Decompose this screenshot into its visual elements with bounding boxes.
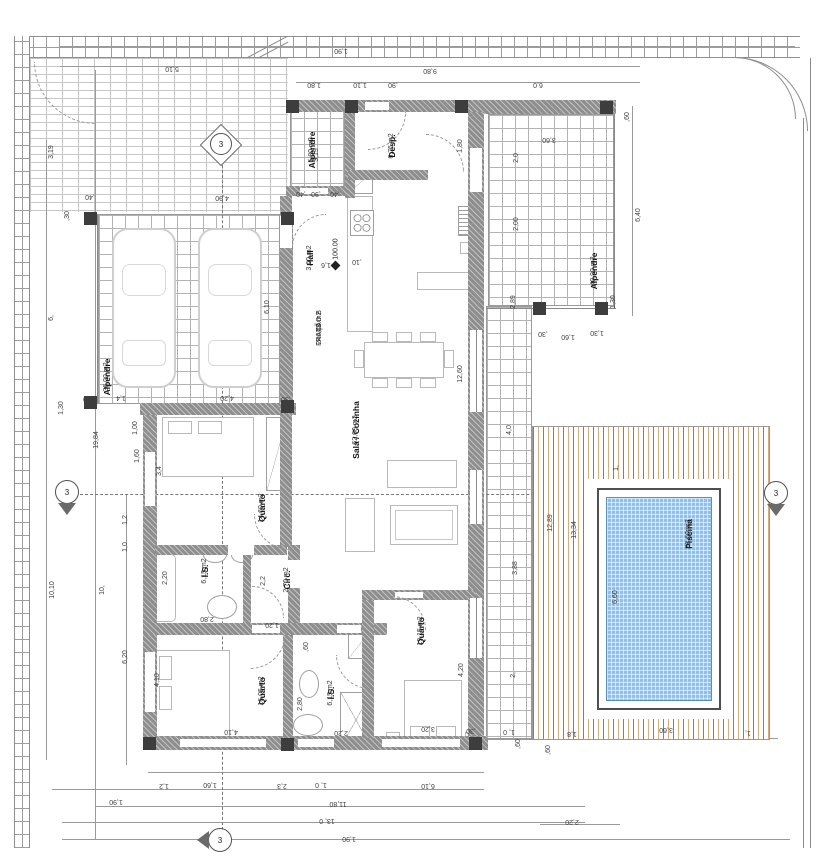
section-marker: 3 xyxy=(764,481,788,505)
dimension-label: 4,10 xyxy=(154,673,162,687)
dimension-label: ,30 xyxy=(83,394,93,402)
room-area: 19,15 m2 xyxy=(417,616,425,645)
dimension-label: 19,84 xyxy=(93,431,101,449)
column xyxy=(281,212,294,225)
wall-north-terrace xyxy=(468,100,616,114)
dimension-label: 4,10 xyxy=(224,727,238,735)
column xyxy=(281,738,294,751)
dimension-label: 2,0 xyxy=(513,153,521,163)
room-area: 16,05 m2 xyxy=(258,676,266,705)
stove-icon xyxy=(350,210,374,236)
column xyxy=(469,737,482,750)
dimension-label: 2,00 xyxy=(513,217,521,231)
dimension-label: 1,60 xyxy=(561,332,575,340)
dimension-label: ,60 xyxy=(624,112,632,122)
dimension-label: 1,90 xyxy=(334,46,348,54)
dimension-label: 6,40 xyxy=(635,208,643,222)
section-marker-label: 3 xyxy=(774,489,778,498)
dimension-label: 3,60 xyxy=(659,725,673,733)
dimension-label: ,30 xyxy=(64,211,72,221)
dimension-label: 2, xyxy=(510,672,518,678)
window-south-2 xyxy=(298,739,334,747)
dimension-label: ,30 xyxy=(538,329,548,337)
chair xyxy=(444,350,454,368)
dimension-label: 4,0 xyxy=(506,425,514,435)
dimension-label: 6, xyxy=(48,315,56,321)
dimension-label: 1,30 xyxy=(590,328,604,336)
dimension-label: 1,8 xyxy=(567,729,577,737)
dimension-label: ,90 xyxy=(388,80,398,88)
level-mark: 100.00 xyxy=(333,238,340,259)
window-south-3 xyxy=(382,739,460,747)
dimension-label: 1,90 xyxy=(109,797,123,805)
dimension-label: 1,80 xyxy=(457,139,465,153)
dimension-label: 1,30 xyxy=(58,401,66,415)
pillow xyxy=(159,686,172,710)
dimension-label: ,30 xyxy=(466,726,476,734)
sink xyxy=(299,670,319,698)
dimension-label: 1,2 xyxy=(122,515,130,525)
section-marker: 3 xyxy=(55,480,79,504)
wall-bath-north xyxy=(155,545,287,555)
dimension-label: 1,90 xyxy=(342,834,356,842)
column xyxy=(84,212,97,225)
dimension-label: 1,80 xyxy=(307,80,321,88)
room-area: 3,60 m2 xyxy=(306,245,314,270)
dimension-label: 2,20 xyxy=(565,817,579,825)
section-marker-label: 3 xyxy=(65,488,69,497)
section-marker-triangle xyxy=(58,503,76,515)
section-marker-triangle xyxy=(197,831,209,849)
dimension-label: 3,88 xyxy=(512,561,520,575)
chair xyxy=(396,378,412,388)
wall-is2-west xyxy=(283,635,293,738)
chair xyxy=(372,332,388,342)
dimension-label: 4,20 xyxy=(458,663,466,677)
room-area: 23,60 m2 xyxy=(685,519,693,548)
chair xyxy=(354,350,364,368)
dimension-label: ,10 xyxy=(352,257,362,265)
door-gap-is2 xyxy=(337,625,361,633)
dimension-label: 1,6 xyxy=(321,260,331,268)
dimension-label: ,30 xyxy=(281,394,291,402)
dimension-label: 1,10 xyxy=(353,80,367,88)
column xyxy=(533,302,546,315)
dimension-label: 1,00 xyxy=(132,421,140,435)
dimension-label: 2,3 xyxy=(277,781,287,789)
section-marker-label: 3 xyxy=(218,836,222,845)
dimension-label: 3,4 xyxy=(156,466,164,476)
dimension-label: 4,20 xyxy=(220,393,234,401)
sofa xyxy=(387,460,457,488)
dining-table xyxy=(364,342,444,378)
wall-carport-south xyxy=(140,403,296,415)
dimension-label: 6,10 xyxy=(421,781,435,789)
dimension-label: 1,60 xyxy=(134,449,142,463)
dimension-label: 10,10 xyxy=(49,581,57,599)
dimension-label: 6,60 xyxy=(612,590,620,604)
dimension-label: 1,4 xyxy=(116,393,126,401)
dimension-label: ,60 xyxy=(515,739,523,749)
chair xyxy=(420,378,436,388)
dimension-label: 1,0 xyxy=(122,542,130,552)
column xyxy=(345,100,358,113)
room-area: 6,15 m2 xyxy=(327,680,335,705)
dimension-label: 6,0 xyxy=(533,80,543,88)
section-marker-triangle xyxy=(767,504,785,516)
dimension-label: 3,60 xyxy=(542,135,556,143)
window-west-1 xyxy=(145,452,155,506)
dimension-label: 1, xyxy=(613,465,621,471)
dimension-label: 3,19 xyxy=(313,148,321,162)
dimension-label: 12,89 xyxy=(547,514,555,532)
dimension-label: 13, 0 xyxy=(319,816,335,824)
car-outline xyxy=(112,228,176,388)
dimension-label: ,60 xyxy=(545,745,553,755)
dimension-label: ,60 xyxy=(303,642,311,652)
section-marker: 3 xyxy=(210,133,232,155)
dimension-label: 11,80 xyxy=(330,799,347,807)
column xyxy=(286,100,299,113)
dimension-label: 2,20 xyxy=(162,571,170,585)
dimension-label: 1,60 xyxy=(203,780,217,788)
dimension-label: 2,80 xyxy=(297,697,305,711)
chair xyxy=(396,332,412,342)
section-marker-label: 3 xyxy=(219,140,223,149)
dimension-label: 12,60 xyxy=(457,365,465,383)
dimension-label: 10, xyxy=(99,585,107,595)
column xyxy=(143,737,156,750)
dimension-label: 5,10 xyxy=(165,64,179,72)
chair xyxy=(420,332,436,342)
unit-label-line: 246,40 m2 xyxy=(316,311,324,344)
window-sill-line xyxy=(476,598,477,658)
wall-desp-south xyxy=(348,170,428,180)
section-marker: 3 xyxy=(208,828,232,852)
room-area: 62,60 m2 xyxy=(352,415,360,444)
room-area: 14,60 m2 xyxy=(258,493,266,522)
dimension-label: 1, xyxy=(745,728,751,736)
dimension-label: 6,10 xyxy=(264,300,272,314)
floor-plan-sheet: 3 3 3 3 100.00 T3FRAÇÃO B246,40 m2 Alpen… xyxy=(0,0,816,856)
room-area: 2,70 m2 xyxy=(283,567,291,592)
room-area: 6,75 m2 xyxy=(388,133,396,158)
room-area: 40,90 m2 xyxy=(590,256,598,285)
window-sill-line xyxy=(476,330,477,412)
door-gap-is1 xyxy=(228,545,254,555)
dimension-label: 6,20 xyxy=(122,650,130,664)
dimension-label: 3,19 xyxy=(48,145,56,159)
dimension-label: 1,30 xyxy=(610,295,618,309)
pool-water xyxy=(606,497,712,701)
column xyxy=(595,302,608,315)
car-outline xyxy=(198,228,262,388)
dimension-label: ,40 xyxy=(85,192,95,200)
dimension-label: 2,89 xyxy=(510,295,518,309)
pillow xyxy=(198,421,222,434)
dimension-label: ,40 xyxy=(296,189,306,197)
door-gap-desp xyxy=(365,102,389,110)
dimension-label: ,90 xyxy=(311,189,321,197)
pillow xyxy=(168,421,192,434)
dimension-label: 1, 0 xyxy=(315,780,327,788)
dimension-label: 13,34 xyxy=(571,521,579,539)
dimension-label: 1, 0 xyxy=(503,727,515,735)
door-gap-terrace xyxy=(470,148,482,192)
toilet xyxy=(293,714,323,736)
dimension-label: 1,2 xyxy=(159,781,169,789)
dimension-label: ,30 xyxy=(458,102,466,112)
dimension-label: 1,20 xyxy=(265,620,279,628)
dimension-label: 2,80 xyxy=(200,614,214,622)
armchair xyxy=(345,498,375,552)
room-area: 36,00 m2 xyxy=(103,362,111,391)
dimension-label: 9,80 xyxy=(423,66,437,74)
column xyxy=(600,101,613,114)
dimension-label: 4,90 xyxy=(215,193,229,201)
dimension-label: 2,20 xyxy=(334,728,348,736)
wall-is1-circ xyxy=(243,553,251,627)
chair xyxy=(372,378,388,388)
room-area: 6,15 m2 xyxy=(201,558,209,583)
window-sill-line xyxy=(476,470,477,524)
dimension-label: 3,20 xyxy=(421,724,435,732)
rug xyxy=(390,505,458,545)
dimension-label: ,40 xyxy=(330,189,340,197)
window-south-1 xyxy=(180,739,266,747)
dimension-label: 2,2 xyxy=(260,576,268,586)
